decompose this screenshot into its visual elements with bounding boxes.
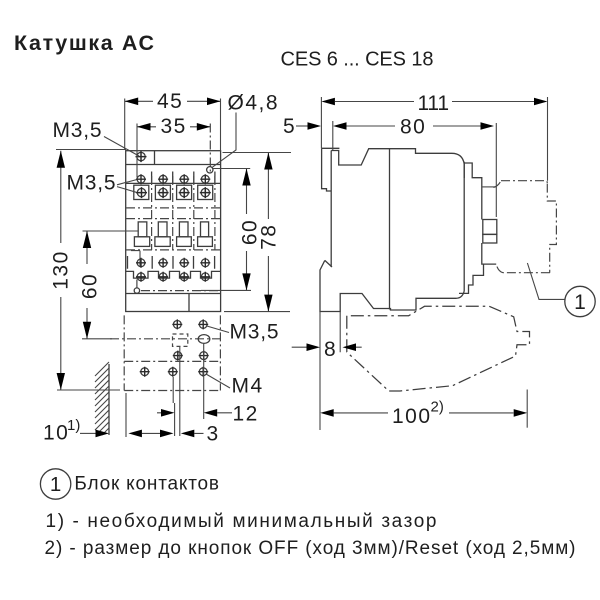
svg-text:Катушка АС: Катушка АС — [14, 31, 154, 55]
svg-text:60: 60 — [79, 273, 102, 299]
svg-text:8: 8 — [324, 338, 337, 361]
svg-text:78: 78 — [258, 224, 281, 250]
svg-text:111: 111 — [418, 92, 451, 115]
svg-text:45: 45 — [157, 90, 183, 113]
svg-text:M3,5: M3,5 — [67, 172, 118, 195]
svg-text:1: 1 — [50, 473, 61, 496]
svg-text:80: 80 — [400, 116, 426, 139]
svg-text:100: 100 — [392, 405, 432, 428]
svg-text:2) - размер до кнопок OFF (ход: 2) - размер до кнопок OFF (ход 3мм)/Rese… — [45, 538, 576, 559]
svg-text:M4: M4 — [232, 375, 264, 398]
svg-text:5: 5 — [283, 115, 296, 138]
svg-text:Блок контактов: Блок контактов — [74, 474, 219, 495]
svg-text:10: 10 — [43, 422, 69, 445]
svg-text:1) - необходимый минимальный з: 1) - необходимый минимальный зазор — [46, 511, 437, 532]
svg-text:130: 130 — [50, 250, 73, 290]
svg-text:12: 12 — [233, 403, 259, 426]
svg-text:1: 1 — [574, 291, 586, 314]
svg-text:Ø4,8: Ø4,8 — [228, 92, 280, 115]
svg-text:M3,5: M3,5 — [230, 321, 281, 344]
svg-text:2): 2) — [431, 399, 444, 416]
svg-text:35: 35 — [161, 115, 187, 138]
svg-text:M3,5: M3,5 — [53, 119, 104, 142]
svg-text:CES 6 ... CES 18: CES 6 ... CES 18 — [281, 49, 434, 71]
svg-text:3: 3 — [207, 423, 220, 446]
svg-text:1): 1) — [67, 417, 80, 434]
